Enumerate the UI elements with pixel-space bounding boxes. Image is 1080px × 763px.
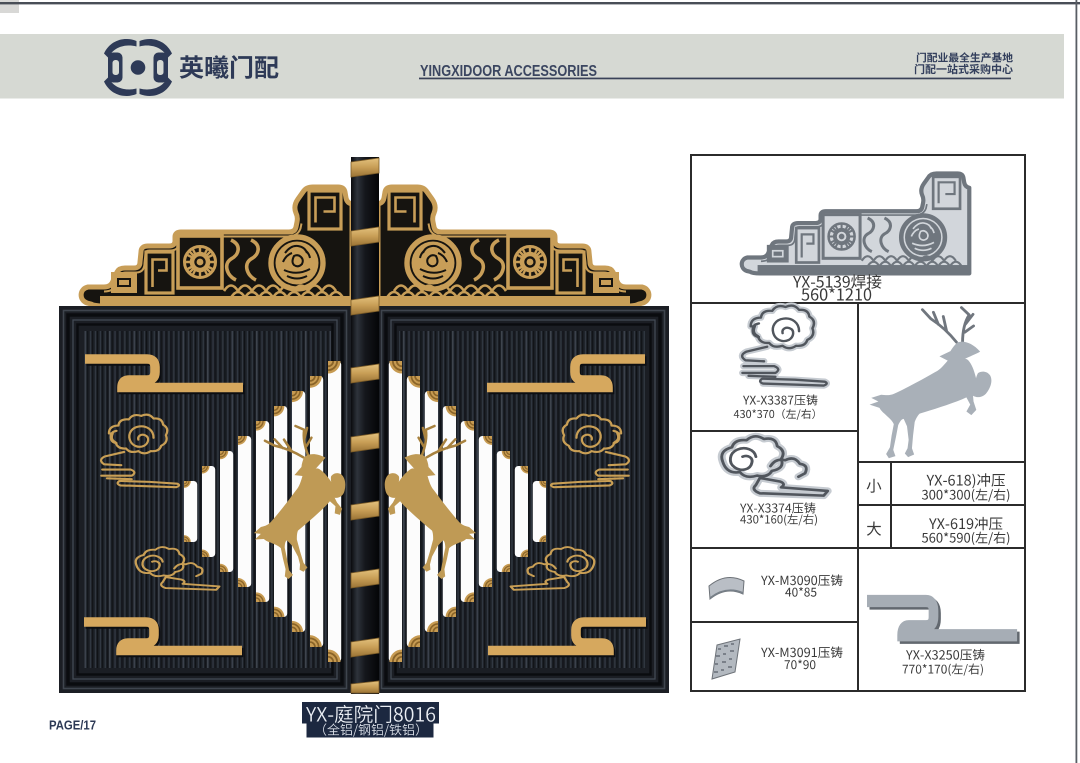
svg-text:PAGE/17: PAGE/17 [49, 718, 96, 733]
svg-text:YINGXIDOOR ACCESSORIES: YINGXIDOOR ACCESSORIES [420, 63, 597, 80]
